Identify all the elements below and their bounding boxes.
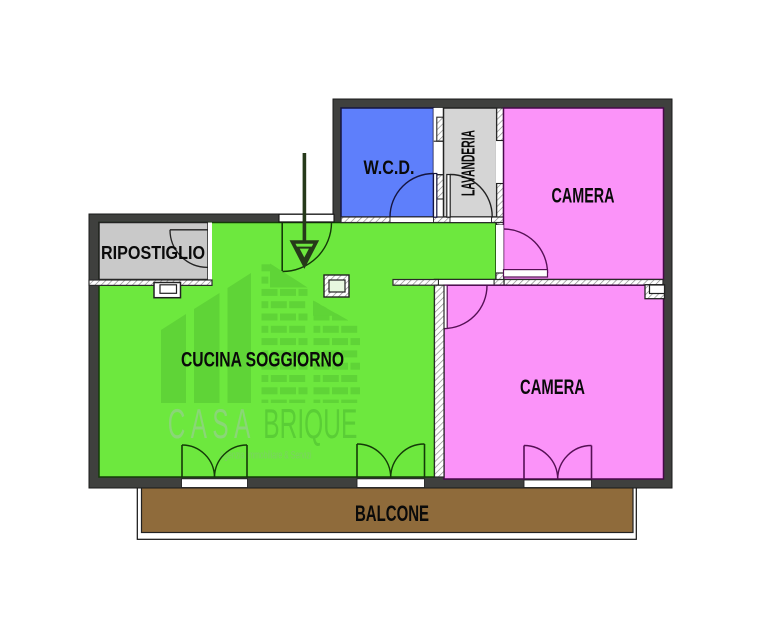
svg-text:BRIQUE: BRIQUE — [263, 400, 357, 447]
svg-text:RIPOSTIGLIO: RIPOSTIGLIO — [101, 243, 205, 263]
svg-text:LAVANDERIA: LAVANDERIA — [458, 130, 479, 196]
svg-text:CAMERA: CAMERA — [552, 185, 615, 208]
svg-text:C A S A: C A S A — [168, 400, 251, 447]
svg-text:CUCINA SOGGIORNO: CUCINA SOGGIORNO — [181, 349, 344, 372]
svg-text:BALCONE: BALCONE — [355, 501, 429, 526]
svg-text:CAMERA: CAMERA — [520, 376, 585, 399]
svg-text:W.C.D.: W.C.D. — [364, 158, 415, 179]
svg-text:Agenzia Immobiliare & Servizi: Agenzia Immobiliare & Servizi — [220, 450, 312, 462]
